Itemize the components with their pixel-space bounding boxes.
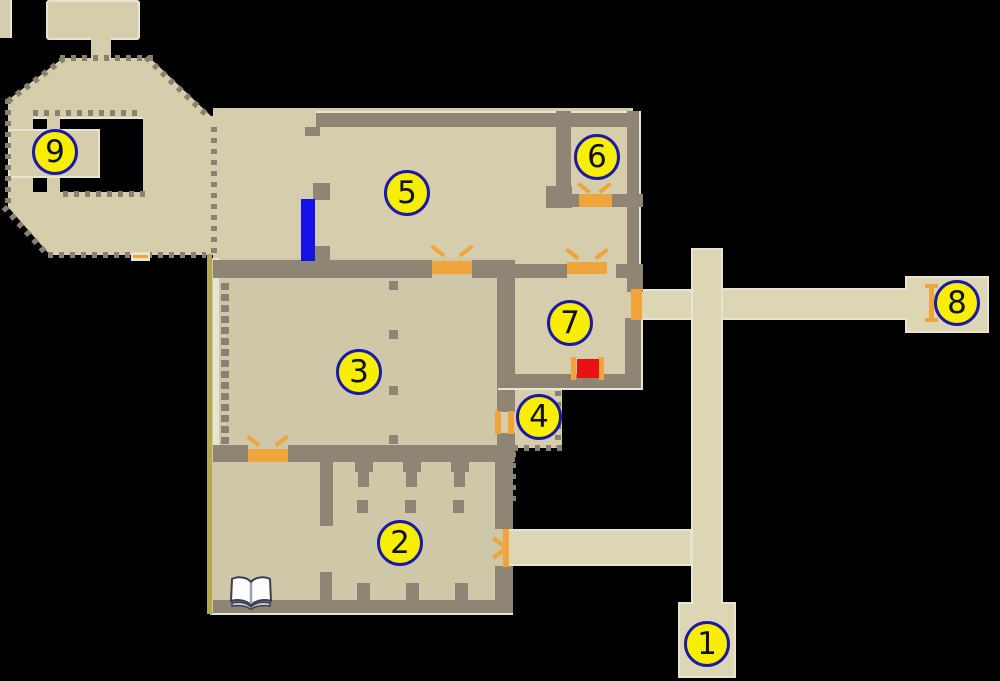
hexagon-south-door-mark (133, 255, 148, 258)
barrier-block (313, 246, 330, 263)
orange-door-marker (567, 262, 607, 274)
room3-left-highlight (213, 258, 219, 462)
red-loot-marker (577, 359, 599, 378)
pillar (455, 583, 468, 607)
dotted-boundary (60, 55, 153, 61)
wall-room5-top (316, 111, 633, 127)
corridor-junction-patch (693, 531, 721, 564)
pillar-dot (389, 435, 398, 444)
wall-room5-top-bump (305, 127, 320, 136)
map-marker-5[interactable]: 5 (384, 170, 430, 216)
map-marker-8[interactable]: 8 (934, 280, 980, 326)
dotted-boundary (63, 191, 151, 197)
wall-room2-inner-upper (320, 462, 333, 526)
pillar (403, 460, 421, 472)
wall-room6-bottom (611, 194, 643, 207)
wall-room6-corner (546, 186, 572, 208)
wall-room6-left (556, 111, 571, 196)
map-marker-3[interactable]: 3 (336, 349, 382, 395)
pillar (406, 583, 419, 607)
map-bridge-room9-bottom (47, 176, 60, 194)
orange-door-marker (248, 449, 288, 462)
map-corridor-south (506, 529, 692, 566)
pillar (454, 472, 465, 487)
pillar (355, 460, 373, 472)
pillar (357, 500, 368, 513)
door-serif (925, 284, 938, 288)
pillar (406, 472, 417, 487)
corridor-junction-patch (695, 600, 721, 608)
map-marker-6[interactable]: 6 (574, 134, 620, 180)
orange-door-marker (508, 411, 514, 434)
map-corridor-east-right (721, 288, 907, 320)
pillar-dot (389, 386, 398, 395)
dungeon-map: 123456789 (0, 0, 1000, 681)
wall-room7-right-bottom (625, 318, 643, 388)
map-marker-1[interactable]: 1 (684, 621, 730, 667)
wall-room2-room3-divider (213, 445, 248, 462)
loot-bracket (571, 357, 576, 380)
dotted-boundary (211, 127, 217, 258)
wall-room2-room3-divider (288, 445, 513, 462)
corridor-junction-patch (693, 289, 721, 319)
orange-door-marker (503, 529, 509, 567)
door-serif (925, 318, 938, 322)
pillar (453, 500, 464, 513)
dotted-boundary (5, 99, 11, 209)
orange-door-marker (631, 289, 642, 320)
dotted-boundary (33, 110, 143, 116)
wall-room2-right-upper (495, 462, 513, 529)
map-marker-2[interactable]: 2 (377, 520, 423, 566)
explored-edge-line (207, 254, 212, 614)
map-corridor-east-left (640, 289, 693, 320)
pillar (358, 472, 369, 487)
pillar-dot (389, 281, 398, 290)
map-marker-9[interactable]: 9 (32, 129, 78, 175)
blue-barrier-marker (301, 199, 315, 261)
map-marker-4[interactable]: 4 (516, 394, 562, 440)
map-region-top-room (46, 0, 140, 40)
orange-door-marker (579, 194, 612, 207)
map-region-top-sliver (0, 0, 12, 38)
pillar (451, 460, 469, 472)
pillar (405, 500, 416, 513)
corridor-junction-patch (903, 290, 911, 318)
wall-passage-bottom (515, 264, 567, 278)
barrier-block (313, 183, 330, 200)
dotted-boundary (48, 252, 206, 258)
wall-room2-inner-lower (320, 572, 332, 605)
dotted-boundary (513, 445, 562, 451)
orange-door-marker (432, 261, 472, 274)
open-book-icon (228, 574, 274, 610)
pillar-dot (389, 330, 398, 339)
pillar (357, 583, 370, 607)
loot-bracket (599, 357, 604, 380)
wall-room7-left (498, 276, 515, 390)
dotted-boundary (221, 283, 229, 445)
map-marker-7[interactable]: 7 (547, 300, 593, 346)
orange-door-marker (495, 411, 501, 434)
